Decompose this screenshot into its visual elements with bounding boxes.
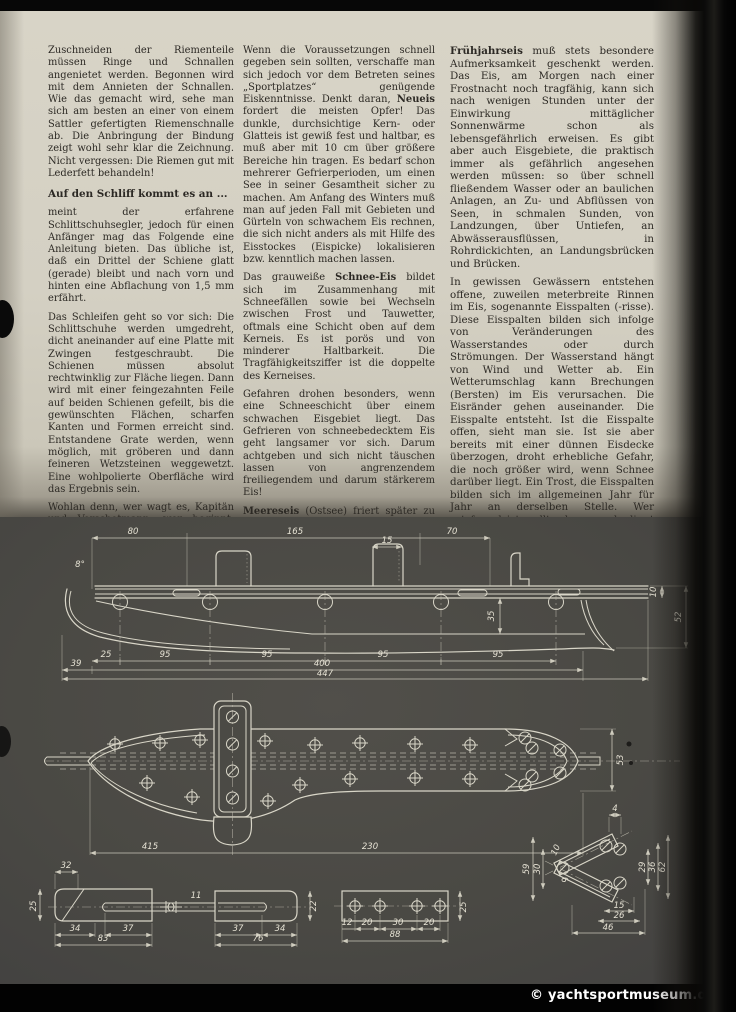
- dim-label: 26: [614, 911, 625, 921]
- dim-label: 400: [314, 659, 330, 669]
- article-area: Zuschneiden der Riementeile müssen Ringe…: [0, 11, 736, 517]
- dim-label: 59: [522, 864, 532, 875]
- top-black-band: [0, 0, 736, 11]
- detail-fork-right: 11 37 34 76 22: [156, 891, 319, 947]
- dim-label: 46: [603, 923, 614, 933]
- dim-label: 4: [612, 804, 617, 814]
- rear-head-cap: [505, 729, 600, 791]
- runner-blueprint: 80 165 70 8° 15: [0, 517, 736, 984]
- text-run: muß stets besondere Aufmerksamkeit gesch…: [450, 45, 654, 270]
- dim-label: 32: [61, 861, 72, 871]
- dim-label: 25: [29, 901, 39, 912]
- dim-label: 12: [342, 918, 353, 928]
- plank-top-edge: [88, 729, 505, 761]
- dim-label: 15: [614, 901, 625, 911]
- keyword-neueis: Neueis: [397, 94, 435, 105]
- text-columns: Zuschneiden der Riementeile müssen Ringe…: [48, 45, 654, 582]
- dim-label: 30: [393, 918, 404, 928]
- dim-label: 34: [70, 924, 81, 934]
- dim-label: 36: [648, 861, 658, 872]
- dim-label: 35: [487, 611, 497, 622]
- scanned-magazine-page: Zuschneiden der Riementeile müssen Ringe…: [0, 0, 736, 1012]
- detail-fork-left: 32 25 34 37 83: [29, 861, 188, 947]
- text-run: bildet sich im Zusammenhang mit Schneefä…: [243, 272, 435, 381]
- dim-label: 20: [424, 918, 435, 928]
- paragraph: Das Schleifen geht so vor sich: Die Schl…: [48, 312, 234, 496]
- keyword-fruehjahrseis: Frühjahrseis: [450, 45, 523, 57]
- dim-label: 53: [616, 755, 626, 766]
- side-view-runner: 80 165 70 8° 15: [62, 527, 688, 681]
- paragraph: Frühjahrseis muß stets besondere Aufmerk…: [450, 45, 654, 270]
- article-column-2: Wenn die Voraussetzungen schnell gegeben…: [243, 45, 435, 582]
- dim-label: 95: [493, 650, 504, 660]
- dim-label: 11: [191, 891, 202, 901]
- dim-label: 83: [98, 934, 109, 944]
- detail-angled-bracket: 4 59 30 10 6 29 36 62 15 26 46: [522, 804, 668, 935]
- l-bracket: [511, 553, 529, 586]
- dim-label: 20: [362, 918, 373, 928]
- dim-label: 34: [275, 924, 286, 934]
- dim-label: 95: [262, 650, 273, 660]
- dim-label: 70: [447, 527, 458, 537]
- keyword-schnee-eis: Schnee-Eis: [335, 272, 396, 283]
- plank-top-inner: [91, 735, 205, 763]
- dim-label: 95: [160, 650, 171, 660]
- plank-bottom-edge: [88, 761, 505, 821]
- paper-speck: [627, 742, 632, 747]
- dim-label: 230: [362, 842, 378, 852]
- blade-outline: [65, 589, 614, 653]
- dim-label: 165: [287, 527, 303, 537]
- dim-label: 88: [390, 930, 401, 940]
- angle-label: 8°: [75, 560, 85, 570]
- flange-line: [96, 601, 585, 634]
- dim-label: 22: [309, 901, 319, 912]
- dim-label: 415: [142, 842, 158, 852]
- paragraph: Das grauweiße Schnee-Eis bildet sich im …: [243, 272, 435, 383]
- bottom-black-band: © yachtsportmuseum.de: [0, 984, 736, 1012]
- dim-label: 37: [123, 924, 134, 934]
- dim-label: 95: [378, 650, 389, 660]
- text-run: Das grauweiße: [243, 272, 335, 283]
- dim-label: 447: [317, 669, 334, 679]
- article-column-3: Frühjahrseis muß stets besondere Aufmerk…: [450, 45, 654, 582]
- crossbar: [213, 693, 251, 857]
- dim-label: 52: [674, 612, 684, 623]
- paragraph: Wenn die Voraussetzungen schnell gegeben…: [243, 45, 435, 266]
- mast-post: [216, 551, 251, 586]
- keyword-meereseis: Meereseis: [243, 506, 299, 517]
- dim-label: 30: [533, 864, 543, 875]
- article-column-1: Zuschneiden der Riementeile müssen Ringe…: [48, 45, 234, 582]
- paragraph: Zuschneiden der Riementeile müssen Ringe…: [48, 45, 234, 180]
- paper-speck: [629, 761, 633, 765]
- paragraph: In gewissen Gewässern entstehen offene, …: [450, 276, 654, 539]
- plan-view-runner: 415 230 53: [45, 693, 681, 857]
- dim-label: 6: [558, 876, 570, 886]
- dim-label: 29: [638, 862, 648, 873]
- dim-label: 62: [658, 862, 668, 873]
- rail-slot: [173, 590, 200, 596]
- technical-drawing-panel: 80 165 70 8° 15: [0, 517, 736, 984]
- plank-bottom-inner: [91, 763, 197, 813]
- dim-label: 10: [549, 843, 563, 857]
- section-heading: Auf den Schliff kommt es an ...: [48, 188, 234, 200]
- rail-slot: [458, 590, 487, 596]
- blade-inner-line: [69, 591, 290, 649]
- tail-cut: [586, 600, 614, 651]
- dim-label: 10: [649, 587, 659, 598]
- detail-drilled-plate: 25 12 20 30 20 88: [334, 891, 469, 943]
- dim-label: 80: [128, 527, 139, 537]
- paragraph: Gefahren drohen besonders, wenn eine Sch…: [243, 389, 435, 500]
- paragraph: meint der erfahrene Schlittschuhsegler, …: [48, 207, 234, 305]
- rear-post: [373, 544, 403, 586]
- text-run: fordert die meisten Opfer! Das dunkle, d…: [243, 106, 435, 265]
- dim-label: 25: [459, 902, 469, 913]
- dim-label: 25: [101, 650, 112, 660]
- dim-label: 39: [71, 659, 82, 669]
- dim-label: 37: [233, 924, 244, 934]
- watermark: © yachtsportmuseum.de: [530, 988, 716, 1003]
